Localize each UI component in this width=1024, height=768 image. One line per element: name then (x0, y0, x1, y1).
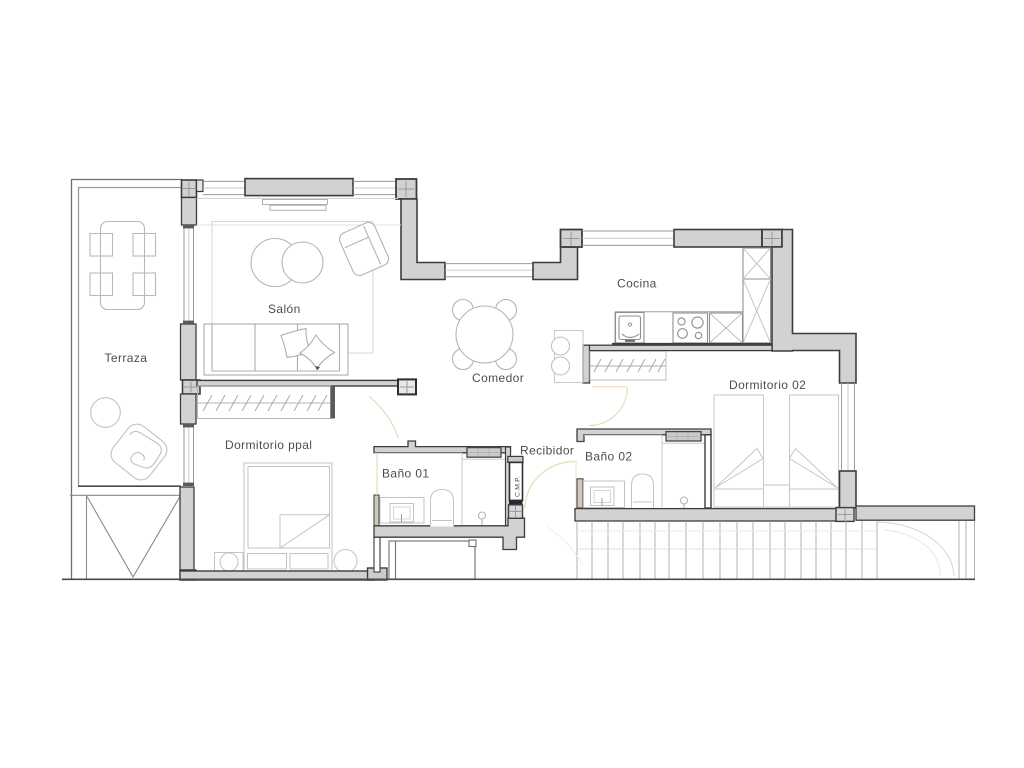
svg-text:C.M.P.: C.M.P. (515, 476, 522, 497)
svg-text:Recibidor: Recibidor (520, 444, 574, 458)
svg-text:Dormitorio 02: Dormitorio 02 (729, 378, 806, 392)
svg-text:Dormitorio ppal: Dormitorio ppal (225, 438, 312, 452)
svg-text:Baño 02: Baño 02 (585, 450, 633, 464)
svg-text:Terraza: Terraza (105, 351, 148, 365)
svg-text:Cocina: Cocina (617, 277, 657, 291)
svg-text:Salón: Salón (268, 302, 301, 316)
svg-text:Baño 01: Baño 01 (382, 467, 430, 481)
svg-text:Comedor: Comedor (472, 371, 524, 385)
